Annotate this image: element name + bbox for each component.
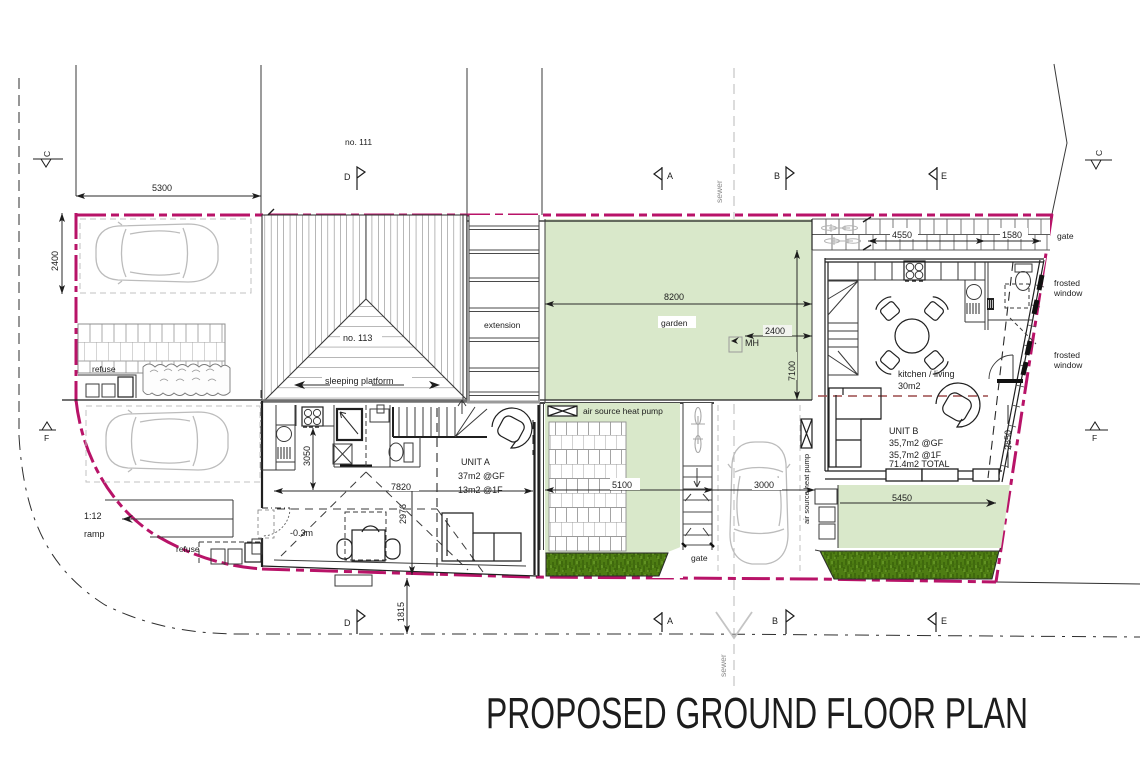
svg-text:5450: 5450: [892, 493, 912, 503]
svg-text:PROPOSED GROUND FLOOR PLAN: PROPOSED GROUND FLOOR PLAN: [486, 689, 1028, 738]
svg-text:no. 113: no. 113: [343, 333, 372, 343]
svg-text:C: C: [1094, 150, 1104, 156]
svg-text:garden: garden: [661, 318, 688, 328]
svg-text:air source heat pump: air source heat pump: [802, 454, 811, 524]
svg-text:5100: 5100: [612, 480, 632, 490]
svg-text:8200: 8200: [664, 292, 684, 302]
svg-text:2850: 2850: [1003, 430, 1013, 450]
svg-text:UNIT B: UNIT B: [889, 426, 918, 436]
svg-text:kitchen / living: kitchen / living: [898, 369, 955, 379]
svg-text:E: E: [941, 616, 947, 626]
svg-text:D: D: [344, 618, 351, 628]
svg-text:13m2 @1F: 13m2 @1F: [458, 485, 503, 495]
svg-text:UNIT A: UNIT A: [461, 457, 490, 467]
svg-text:window: window: [1053, 288, 1083, 298]
svg-text:5300: 5300: [152, 183, 172, 193]
svg-text:B: B: [774, 171, 780, 181]
svg-text:D: D: [344, 172, 351, 182]
svg-text:71.4m2 TOTAL: 71.4m2 TOTAL: [889, 459, 950, 469]
svg-text:MH: MH: [745, 338, 759, 348]
svg-text:30m2: 30m2: [898, 381, 921, 391]
svg-text:3000: 3000: [754, 480, 774, 490]
svg-text:F: F: [1092, 433, 1097, 443]
svg-text:37m2 @GF: 37m2 @GF: [458, 471, 505, 481]
svg-text:window: window: [1053, 360, 1083, 370]
svg-text:A: A: [667, 171, 673, 181]
svg-text:1815: 1815: [396, 602, 406, 622]
svg-text:B: B: [772, 616, 778, 626]
svg-text:E: E: [941, 171, 947, 181]
svg-text:F: F: [44, 433, 49, 443]
svg-text:A: A: [667, 616, 673, 626]
svg-text:1580: 1580: [1002, 230, 1022, 240]
svg-text:1:12: 1:12: [84, 511, 102, 521]
svg-text:no. 111: no. 111: [345, 137, 372, 147]
svg-text:4550: 4550: [892, 230, 912, 240]
svg-text:gate: gate: [691, 553, 708, 563]
svg-text:2400: 2400: [50, 251, 60, 271]
svg-text:gate: gate: [1057, 231, 1074, 241]
svg-text:refuse: refuse: [176, 544, 200, 554]
svg-text:7100: 7100: [787, 361, 797, 381]
svg-text:refuse: refuse: [92, 364, 116, 374]
svg-text:frosted: frosted: [1054, 278, 1080, 288]
svg-text:extension: extension: [484, 320, 521, 330]
svg-text:2400: 2400: [765, 326, 785, 336]
svg-text:frosted: frosted: [1054, 350, 1080, 360]
svg-text:air source heat pump: air source heat pump: [583, 406, 663, 416]
svg-text:C: C: [42, 151, 52, 157]
svg-text:sewer: sewer: [714, 180, 724, 203]
svg-text:3050: 3050: [302, 446, 312, 466]
svg-text:-0.3m: -0.3m: [290, 528, 313, 538]
svg-text:2976: 2976: [398, 504, 408, 524]
svg-text:ramp: ramp: [84, 529, 105, 539]
svg-text:35,7m2 @GF: 35,7m2 @GF: [889, 438, 944, 448]
svg-text:7820: 7820: [391, 482, 411, 492]
svg-text:sewer: sewer: [718, 654, 728, 677]
